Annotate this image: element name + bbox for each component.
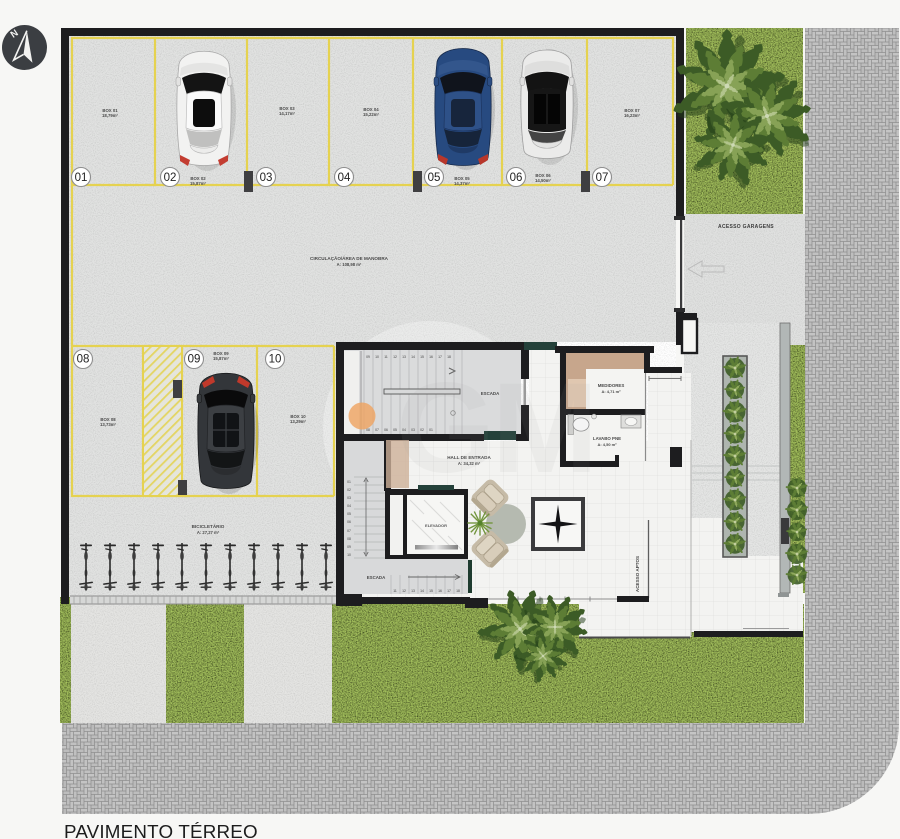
svg-text:14,17m²: 14,17m²: [279, 111, 296, 116]
svg-text:A: 4,71 m²: A: 4,71 m²: [601, 389, 621, 394]
svg-text:06: 06: [347, 520, 351, 524]
svg-text:CIRCULAÇÃO/ÁREA DE MANOBRA: CIRCULAÇÃO/ÁREA DE MANOBRA: [310, 255, 389, 261]
svg-text:PAVIMENTO TÉRREO: PAVIMENTO TÉRREO: [64, 821, 258, 839]
svg-text:13: 13: [411, 589, 415, 593]
svg-text:A: 27,27 m²: A: 27,27 m²: [197, 530, 220, 535]
svg-text:07: 07: [596, 172, 609, 184]
svg-text:15: 15: [429, 589, 433, 593]
svg-text:18: 18: [456, 589, 460, 593]
svg-text:08: 08: [347, 537, 351, 541]
svg-text:14,37m²: 14,37m²: [454, 181, 471, 186]
svg-text:LAVABO PNE: LAVABO PNE: [593, 436, 621, 441]
svg-text:02: 02: [164, 172, 177, 184]
svg-text:10: 10: [269, 354, 282, 366]
svg-text:A: 108,98 m²: A: 108,98 m²: [337, 262, 362, 267]
svg-text:18,79m²: 18,79m²: [102, 113, 119, 118]
svg-text:16,23m²: 16,23m²: [624, 113, 641, 118]
svg-text:MEDIDORES: MEDIDORES: [598, 383, 625, 388]
svg-text:BICICLETÁRIO: BICICLETÁRIO: [192, 523, 225, 529]
svg-text:14,50m²: 14,50m²: [535, 178, 552, 183]
svg-text:01: 01: [347, 480, 351, 484]
svg-text:ACESSO APTOS: ACESSO APTOS: [635, 556, 640, 592]
svg-text:13,73m²: 13,73m²: [100, 422, 117, 427]
svg-text:09: 09: [347, 545, 351, 549]
svg-text:01: 01: [75, 172, 88, 184]
svg-text:ACESSO GARAGENS: ACESSO GARAGENS: [718, 224, 774, 230]
svg-text:11: 11: [393, 589, 397, 593]
svg-text:11: 11: [384, 355, 388, 359]
svg-text:09: 09: [188, 354, 201, 366]
svg-text:GM: GM: [396, 357, 594, 500]
svg-text:10: 10: [347, 553, 351, 557]
svg-text:07: 07: [347, 529, 351, 533]
svg-text:ELEVADOR: ELEVADOR: [425, 523, 447, 528]
svg-text:04: 04: [347, 504, 351, 508]
svg-text:15,87m²: 15,87m²: [190, 181, 207, 186]
svg-text:07: 07: [375, 428, 379, 432]
svg-text:15,87m²: 15,87m²: [213, 356, 230, 361]
svg-text:03: 03: [347, 496, 351, 500]
svg-text:08: 08: [77, 354, 90, 366]
svg-text:10: 10: [375, 355, 379, 359]
svg-text:13,29m²: 13,29m²: [290, 419, 307, 424]
svg-text:14: 14: [420, 589, 424, 593]
svg-text:02: 02: [347, 488, 351, 492]
svg-text:06: 06: [510, 172, 523, 184]
svg-text:03: 03: [260, 172, 273, 184]
svg-text:06: 06: [384, 428, 388, 432]
svg-text:12: 12: [402, 589, 406, 593]
svg-text:15,22m²: 15,22m²: [363, 112, 380, 117]
svg-text:05: 05: [428, 172, 441, 184]
svg-text:09: 09: [366, 355, 370, 359]
svg-text:16: 16: [438, 589, 442, 593]
svg-text:05: 05: [347, 512, 351, 516]
svg-text:ESCADA: ESCADA: [367, 575, 386, 580]
svg-text:17: 17: [447, 589, 451, 593]
svg-text:A: 4,50 m²: A: 4,50 m²: [597, 442, 617, 447]
svg-text:04: 04: [338, 172, 351, 184]
